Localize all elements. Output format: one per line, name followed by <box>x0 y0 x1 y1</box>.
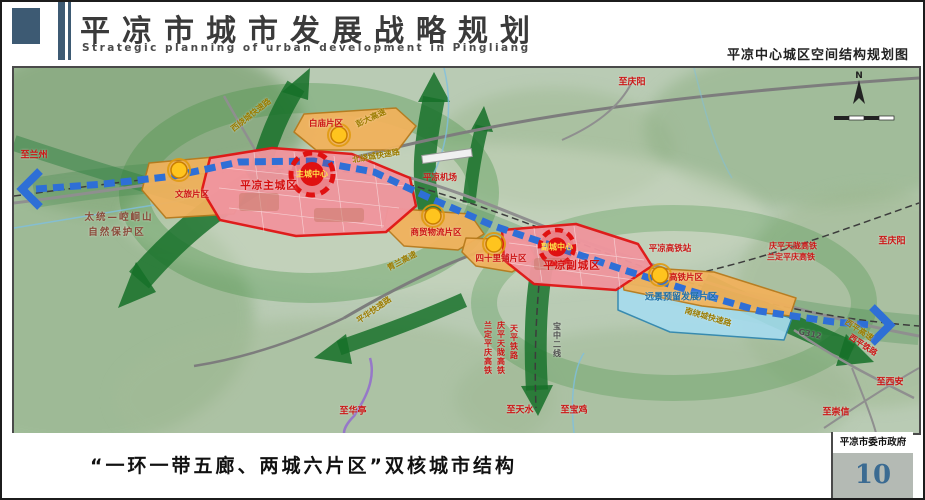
footer: “一环一带五廊、两城六片区”双核城市结构 平凉市委市政府 10 <box>12 433 913 499</box>
logo-bar <box>58 2 65 60</box>
logo-square <box>12 8 40 44</box>
logo-bar-thin <box>68 2 71 60</box>
footer-box: 平凉市委市政府 10 <box>831 432 913 499</box>
planning-map: N 至兰州太统—崆峒山自然保护区文旅片区西绕城快速路白庙片区彭大高速北绕城快速路… <box>12 66 921 435</box>
page-number: 10 <box>833 453 913 498</box>
planning-sheet: 平凉市城市发展战略规划 Strategic planning of urban … <box>0 0 925 500</box>
svg-text:N: N <box>855 71 863 81</box>
agency-name: 平凉市委市政府 <box>833 432 913 453</box>
map-graphic: N <box>14 68 919 433</box>
page-subtitle: Strategic planning of urban development … <box>82 42 531 54</box>
structure-caption: “一环一带五廊、两城六片区”双核城市结构 <box>90 451 517 478</box>
header: 平凉市城市发展战略规划 Strategic planning of urban … <box>2 2 923 64</box>
map-title: 平凉中心城区空间结构规划图 <box>727 44 909 63</box>
